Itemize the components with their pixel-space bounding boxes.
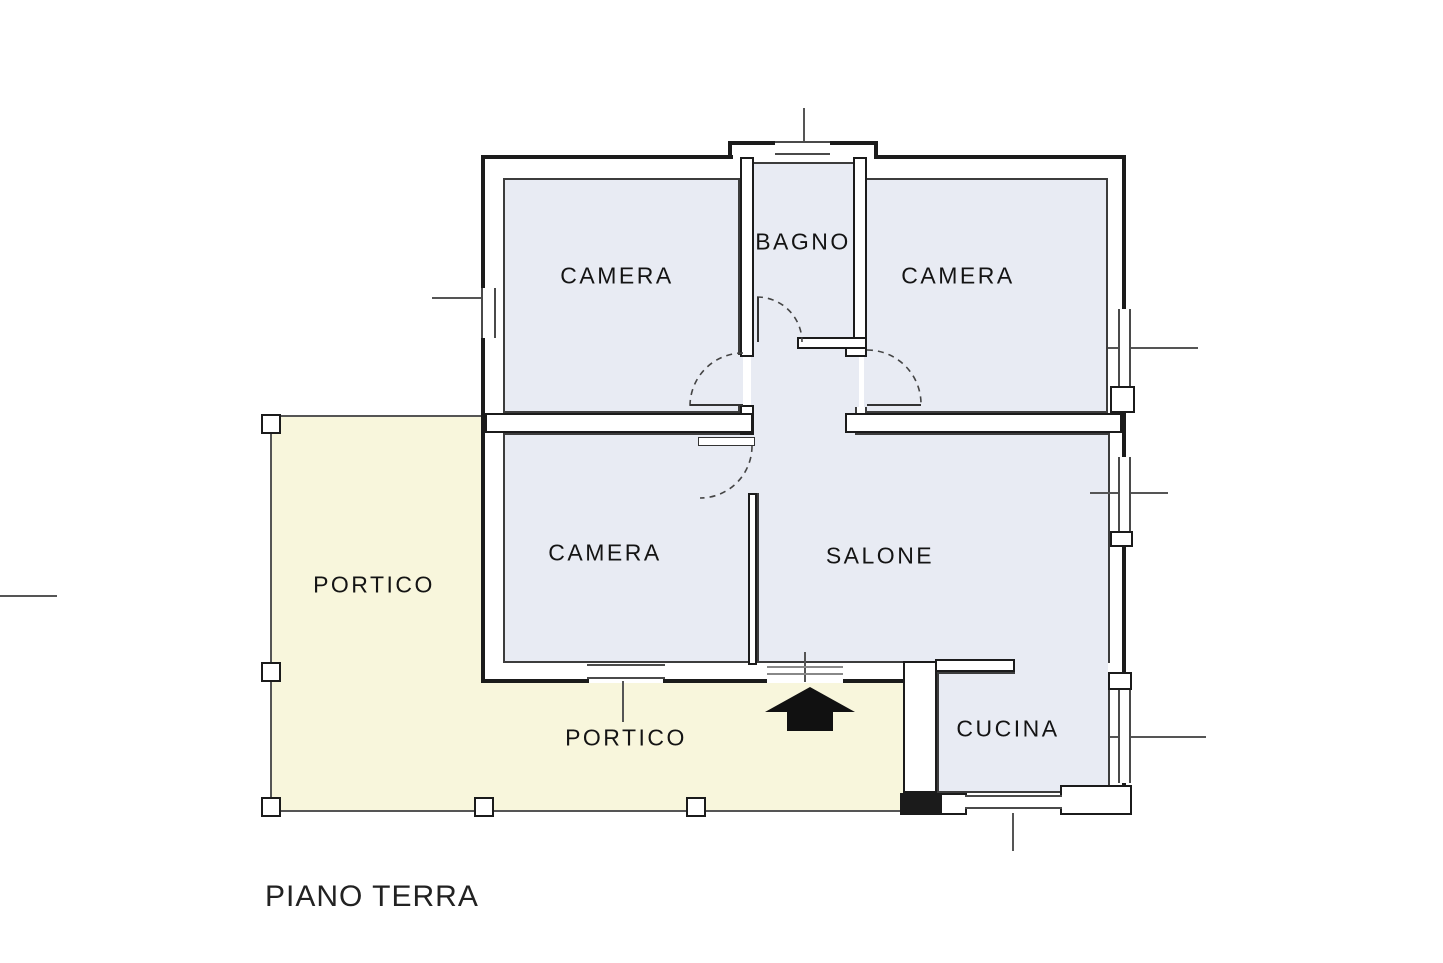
portico-column — [261, 414, 281, 434]
wall — [748, 493, 757, 665]
wall — [940, 793, 967, 815]
dimension-line — [803, 108, 805, 142]
opening-patch — [853, 357, 859, 407]
wall — [663, 679, 767, 683]
wall — [485, 413, 753, 433]
window — [1118, 690, 1131, 783]
room-label-salone: SALONE — [826, 543, 934, 570]
room-fill — [503, 178, 740, 413]
room-label-camera-top-left: CAMERA — [560, 263, 673, 290]
wall — [843, 679, 905, 683]
wall — [481, 336, 485, 683]
dimension-line — [622, 681, 624, 722]
portico-column — [261, 662, 281, 682]
room-label-portico-left: PORTICO — [313, 572, 435, 599]
dimension-line — [0, 595, 57, 597]
wall — [797, 337, 867, 349]
room-fill — [865, 178, 1108, 413]
window — [965, 795, 1062, 809]
dimension-line — [432, 297, 482, 299]
window — [481, 288, 496, 338]
floor-plan: PIANO TERRA CAMERABAGNOCAMERACAMERASALON… — [0, 0, 1443, 963]
dimension-line — [270, 415, 272, 812]
portico-column — [686, 797, 706, 817]
wall — [1122, 155, 1126, 309]
wall — [481, 155, 733, 159]
opening-patch — [1015, 655, 1108, 680]
window — [775, 141, 830, 155]
room-label-cucina: CUCINA — [956, 716, 1059, 743]
opening-patch — [754, 420, 855, 444]
door-leaf — [698, 437, 755, 446]
wall — [481, 679, 589, 683]
wall — [1110, 531, 1133, 547]
wall — [874, 155, 1126, 159]
room-label-bagno: BAGNO — [755, 229, 851, 256]
dimension-line — [1012, 813, 1014, 851]
wall — [1110, 386, 1135, 413]
dimension-line — [268, 415, 483, 417]
wall — [481, 155, 485, 290]
window — [1118, 457, 1131, 531]
plan-title: PIANO TERRA — [265, 880, 479, 914]
dimension-line — [767, 666, 843, 668]
wall — [903, 661, 937, 793]
room-label-camera-top-right: CAMERA — [901, 263, 1014, 290]
opening-patch — [751, 357, 756, 405]
window — [1118, 309, 1131, 386]
room-label-camera-bottom: CAMERA — [548, 540, 661, 567]
room-label-portico-bottom: PORTICO — [565, 725, 687, 752]
dimension-line — [767, 673, 843, 675]
opening-patch — [736, 355, 743, 405]
wall — [740, 157, 754, 357]
portico-area — [272, 416, 483, 811]
wall — [1122, 531, 1126, 690]
wall — [1108, 672, 1132, 690]
portico-column — [474, 797, 494, 817]
wall — [900, 793, 942, 815]
wall — [1060, 785, 1132, 815]
opening-patch — [752, 335, 799, 349]
wall — [845, 413, 1122, 433]
dimension-line — [268, 810, 905, 812]
portico-column — [261, 797, 281, 817]
portico-area — [483, 683, 903, 811]
wall — [728, 141, 732, 159]
window — [587, 664, 665, 679]
wall — [853, 157, 867, 342]
opening-patch — [864, 355, 872, 407]
wall — [935, 659, 1015, 672]
